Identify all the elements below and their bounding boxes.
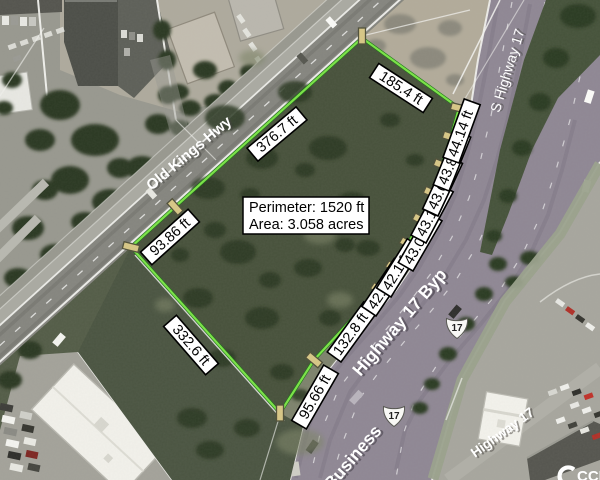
svg-text:17: 17 <box>388 411 400 422</box>
svg-text:Area: 3.058 acres: Area: 3.058 acres <box>249 217 363 233</box>
svg-text:CCMLS: CCMLS <box>577 468 600 480</box>
svg-text:17: 17 <box>451 323 463 334</box>
svg-text:Perimeter: 1520 ft: Perimeter: 1520 ft <box>249 200 364 216</box>
